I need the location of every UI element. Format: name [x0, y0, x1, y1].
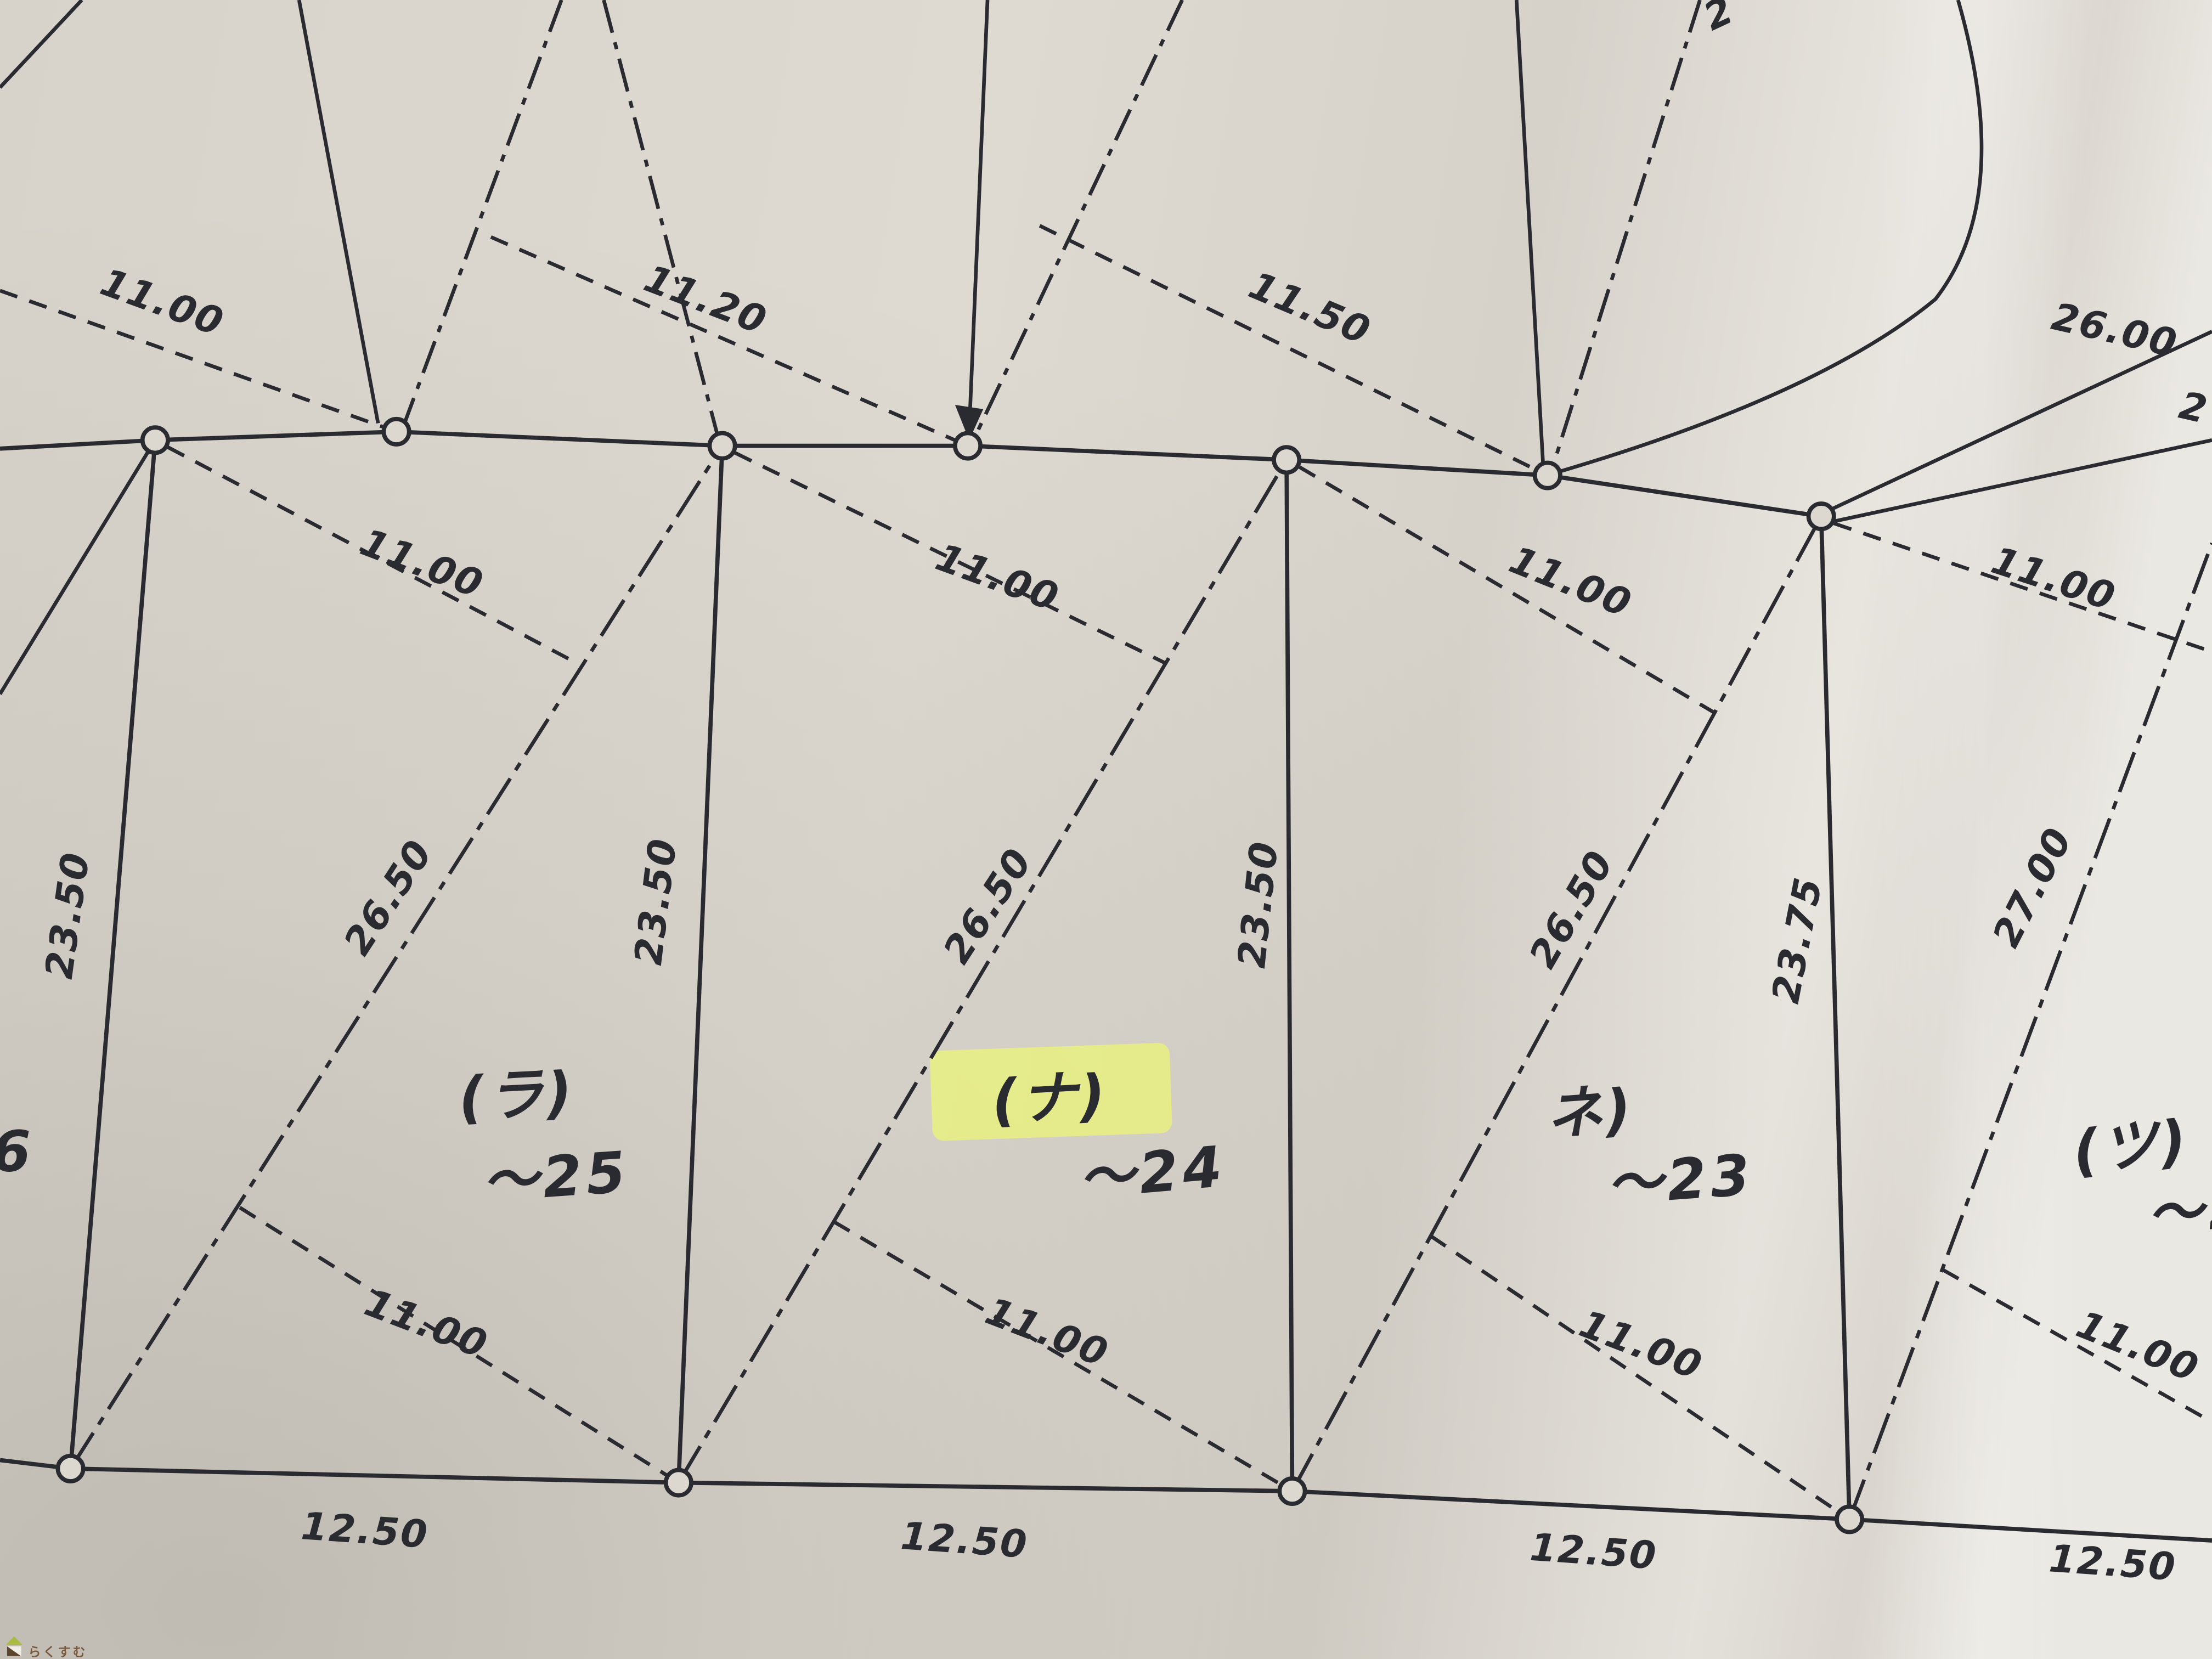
dim-bottom-4: 12.50	[2047, 1537, 2177, 1589]
survey-node	[955, 433, 980, 458]
parcel-24-number: 〜24	[1076, 1134, 1228, 1212]
dim-bottom-3: 12.50	[1528, 1526, 1658, 1578]
survey-node	[1279, 1479, 1305, 1504]
dim-bottom-1: 12.50	[300, 1504, 430, 1557]
watermark-text: らくすむ	[28, 1645, 87, 1659]
survey-node	[666, 1470, 691, 1495]
parcel-26-number-partial: 6	[0, 1119, 35, 1184]
survey-node	[383, 419, 409, 444]
parcel-25-number: 〜25	[480, 1139, 632, 1215]
parcel-22-number-partial: 〜2	[2145, 1174, 2212, 1248]
survey-node	[709, 433, 735, 458]
parcel-23-number: 〜23	[1604, 1143, 1756, 1218]
survey-node	[1809, 504, 1834, 529]
survey-node	[1535, 462, 1560, 488]
survey-node	[1274, 447, 1299, 472]
survey-node	[1837, 1506, 1862, 1532]
photographed-survey-map: 11.00 11.20 11.50 26.00 2 2 11.00 11.00 …	[0, 0, 2212, 1659]
survey-node	[58, 1456, 83, 1481]
survey-node	[143, 427, 168, 453]
parcel-24-kana: (ナ)	[990, 1063, 1110, 1134]
parcel-23-kana: ネ)	[1544, 1077, 1636, 1148]
dim-bottom-2: 12.50	[899, 1514, 1029, 1567]
survey-map-svg: 11.00 11.20 11.50 26.00 2 2 11.00 11.00 …	[0, 0, 2212, 1659]
parcel-25-kana: (ラ)	[457, 1060, 577, 1131]
parcel-22-kana: (ツ)	[2070, 1108, 2193, 1185]
